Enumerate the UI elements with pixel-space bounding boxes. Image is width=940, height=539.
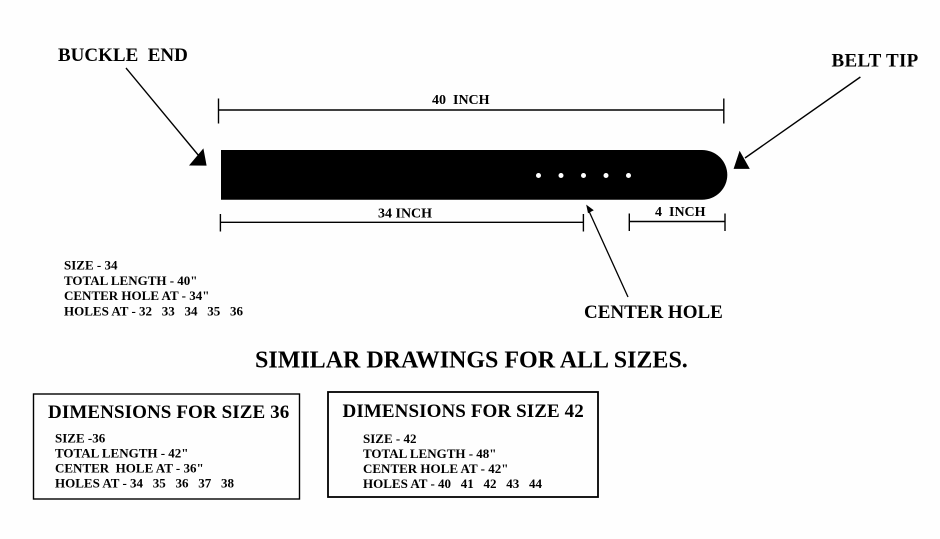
svg-text:SIMILAR DRAWINGS FOR ALL SIZES: SIMILAR DRAWINGS FOR ALL SIZES. [255, 347, 688, 373]
svg-text:34 INCH: 34 INCH [378, 207, 432, 222]
svg-text:TOTAL LENGTH - 48": TOTAL LENGTH - 48" [363, 446, 497, 461]
svg-text:4 INCH: 4 INCH [655, 205, 706, 220]
svg-text:TOTAL LENGTH - 40": TOTAL LENGTH - 40" [64, 273, 198, 288]
svg-text:40 INCH: 40 INCH [432, 93, 490, 108]
svg-text:SIZE - 34: SIZE - 34 [64, 258, 118, 273]
svg-text:DIMENSIONS FOR SIZE 42: DIMENSIONS FOR SIZE 42 [343, 401, 584, 422]
svg-text:BUCKLE END: BUCKLE END [58, 45, 188, 66]
svg-text:CENTER HOLE: CENTER HOLE [584, 302, 723, 323]
svg-text:CENTER HOLE AT - 34": CENTER HOLE AT - 34" [64, 288, 209, 303]
svg-text:CENTER HOLE AT - 36": CENTER HOLE AT - 36" [55, 461, 204, 476]
svg-text:HOLES AT - 34 35 36 37: HOLES AT - 34 35 36 37 38 [55, 476, 235, 491]
svg-text:BELT TIP: BELT TIP [832, 51, 919, 72]
svg-text:HOLES AT - 40 41 42 43: HOLES AT - 40 41 42 43 44 [363, 476, 543, 491]
svg-text:DIMENSIONS FOR SIZE 36: DIMENSIONS FOR SIZE 36 [48, 402, 289, 423]
svg-text:HOLES AT - 32 33 34 35: HOLES AT - 32 33 34 35 36 [64, 304, 244, 319]
svg-text:SIZE -36: SIZE -36 [55, 431, 106, 446]
svg-text:TOTAL LENGTH - 42": TOTAL LENGTH - 42" [55, 446, 189, 461]
svg-text:SIZE - 42: SIZE - 42 [363, 431, 416, 446]
svg-text:CENTER HOLE AT - 42": CENTER HOLE AT - 42" [363, 461, 508, 476]
